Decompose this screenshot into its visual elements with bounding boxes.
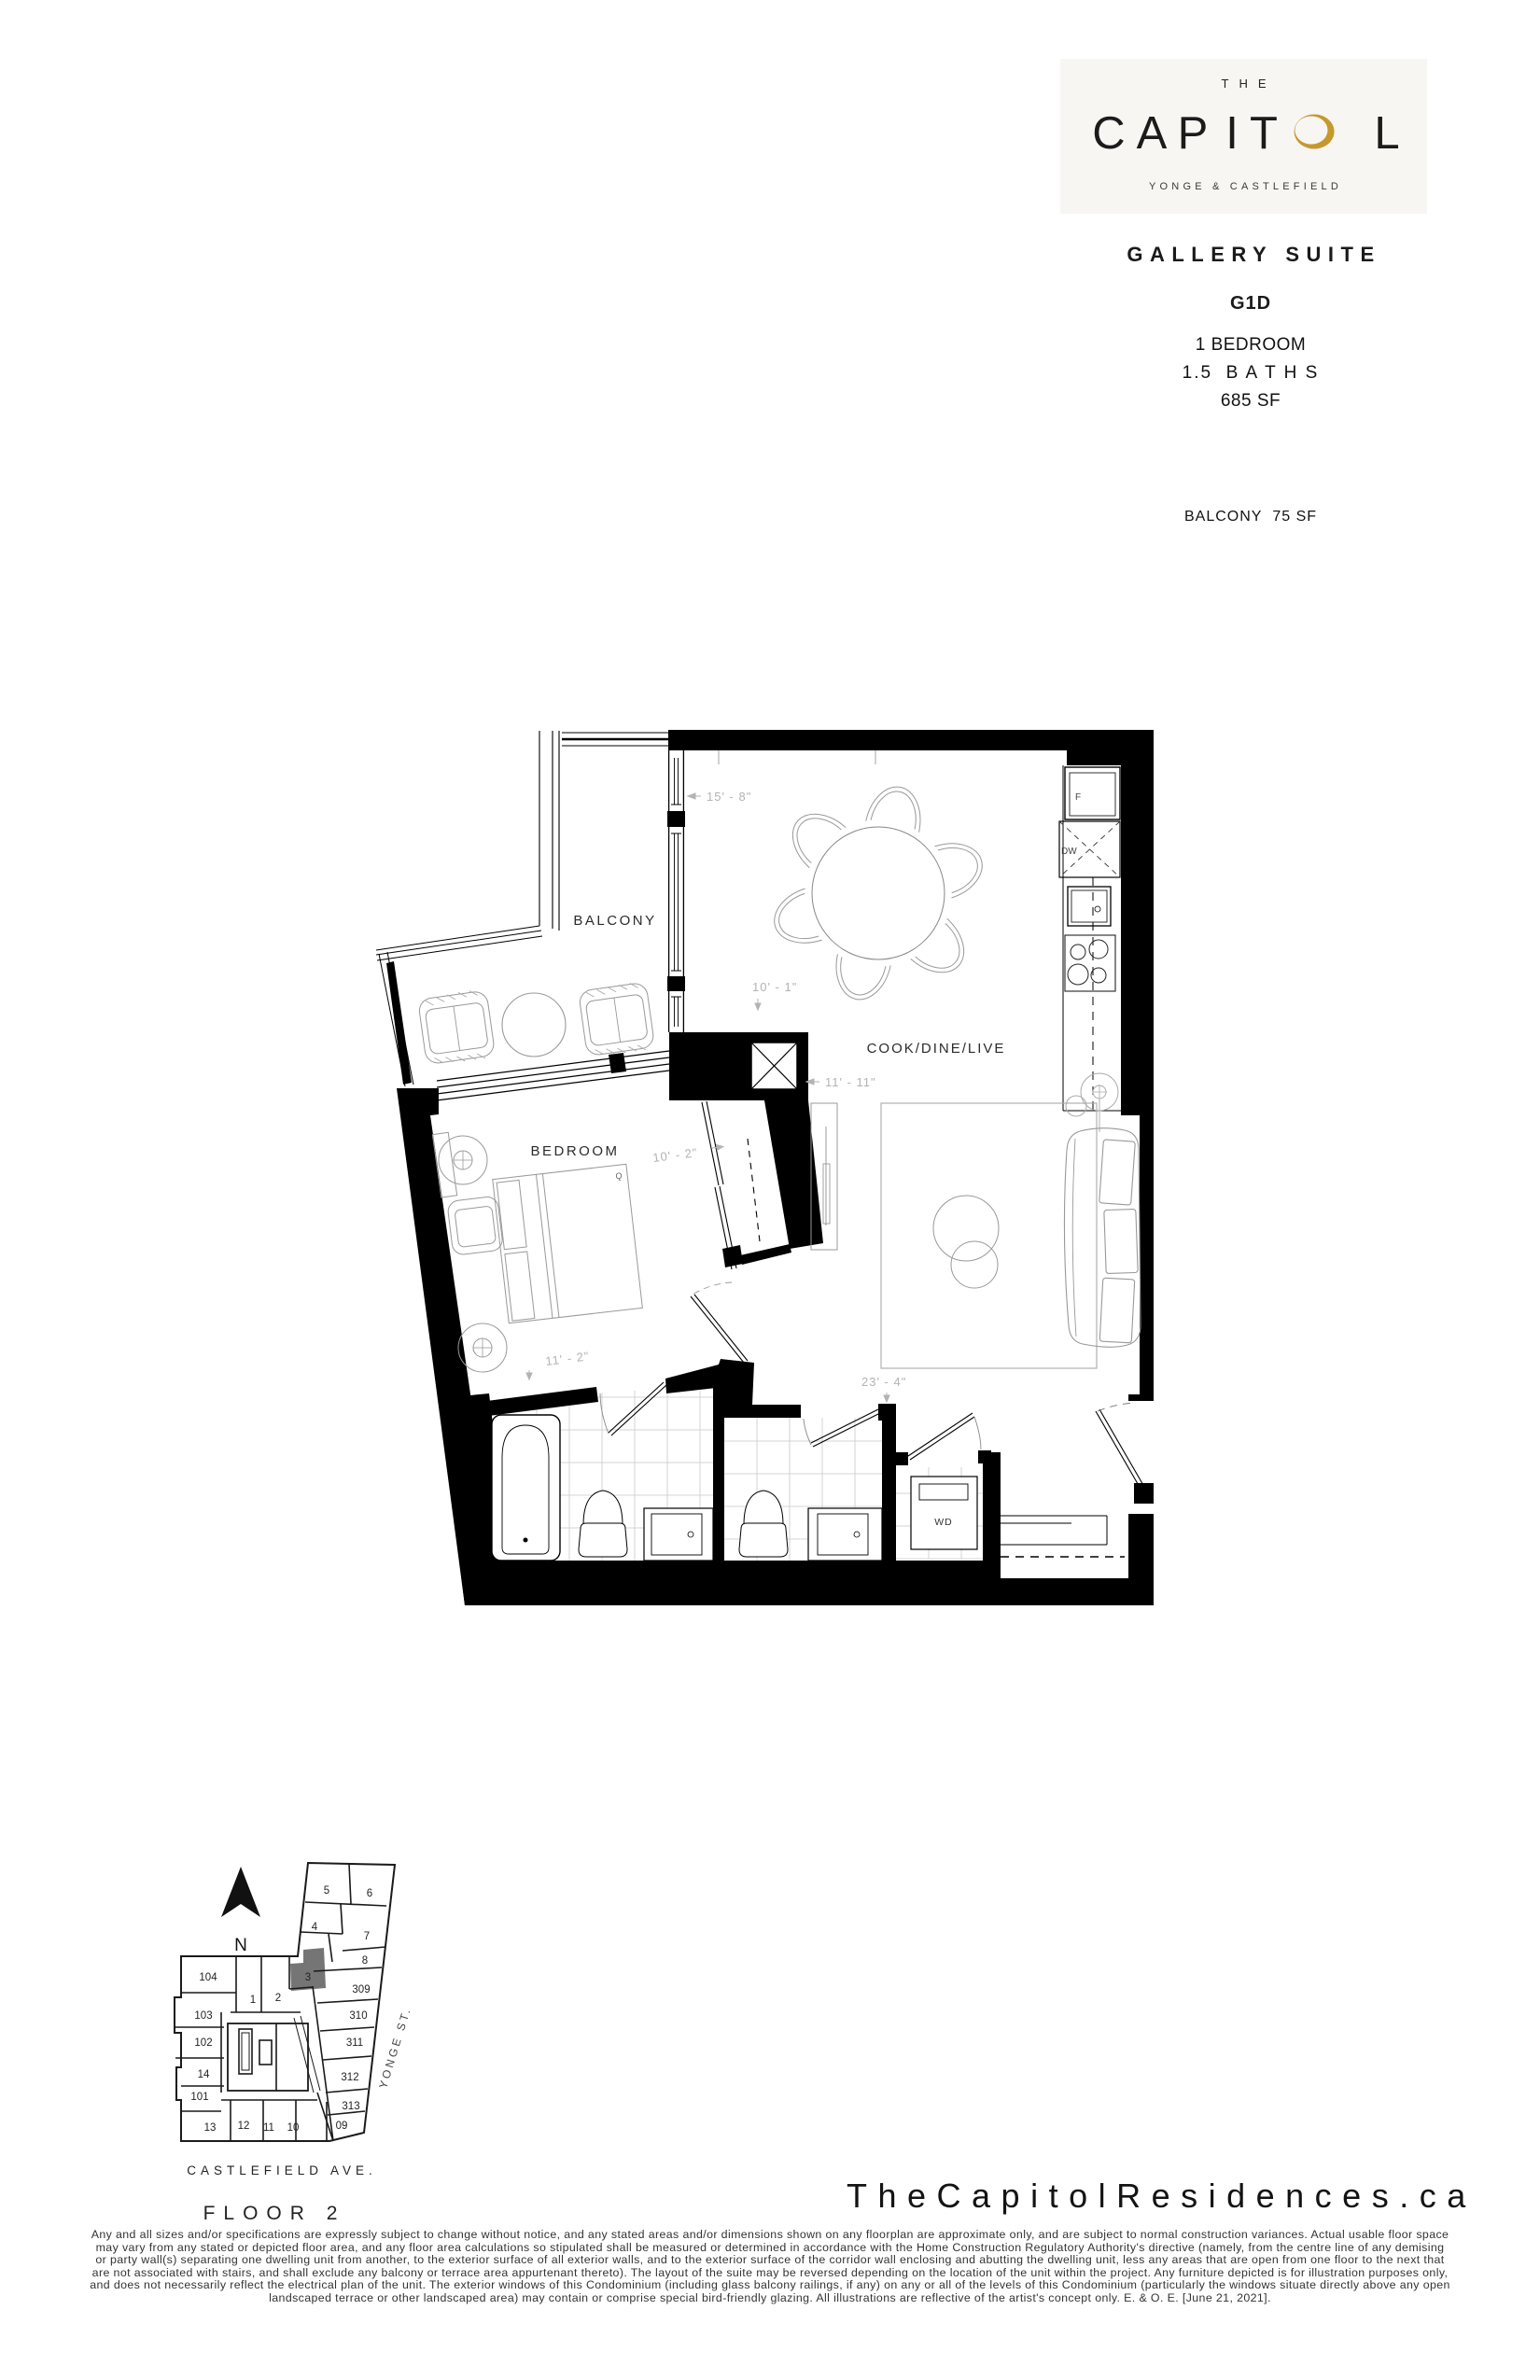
svg-text:12: 12 <box>238 2121 250 2132</box>
svg-text:09: 09 <box>336 2121 348 2132</box>
svg-text:6: 6 <box>367 1888 372 1899</box>
svg-text:104: 104 <box>199 1972 217 1983</box>
svg-text:13: 13 <box>204 2122 217 2134</box>
svg-text:1: 1 <box>250 1995 256 2006</box>
svg-text:YONGE ST.: YONGE ST. <box>376 2005 413 2090</box>
svg-text:310: 310 <box>349 2010 367 2022</box>
svg-text:309: 309 <box>352 1984 370 1995</box>
svg-text:N: N <box>234 1936 247 1955</box>
svg-text:10: 10 <box>287 2122 300 2134</box>
svg-text:14: 14 <box>198 2069 210 2080</box>
svg-text:103: 103 <box>194 2010 212 2022</box>
svg-text:5: 5 <box>324 1885 329 1897</box>
svg-text:8: 8 <box>362 1955 368 1967</box>
svg-text:2: 2 <box>275 1993 281 2004</box>
svg-text:7: 7 <box>364 1931 370 1942</box>
svg-text:313: 313 <box>342 2101 359 2112</box>
svg-text:312: 312 <box>341 2072 358 2083</box>
svg-text:4: 4 <box>312 1922 318 1933</box>
svg-text:101: 101 <box>190 2092 208 2103</box>
svg-text:311: 311 <box>346 2037 363 2049</box>
svg-text:3: 3 <box>305 1972 311 1983</box>
svg-text:11: 11 <box>263 2122 274 2134</box>
svg-text:102: 102 <box>194 2037 212 2049</box>
